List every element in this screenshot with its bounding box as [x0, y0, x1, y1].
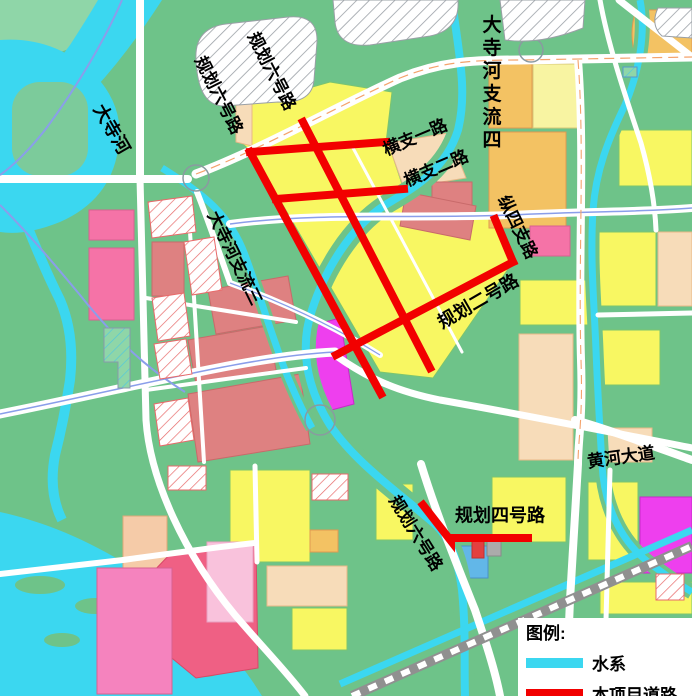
map-canvas: 规划六号路规划六号路大寺河大寺河支流四横支一路横支二路纵四支路规划二号路大寺河支…: [0, 0, 692, 696]
legend-title: 图例:: [526, 624, 692, 644]
legend: 图例: 水系 本项目道路: [518, 618, 692, 696]
legend-row-water: 水系: [526, 650, 692, 675]
project-road-line-swatch: [526, 689, 583, 696]
planning-map: 规划六号路规划六号路大寺河大寺河支流四横支一路横支二路纵四支路规划二号路大寺河支…: [0, 0, 692, 696]
map-label-10: 规划四号路: [455, 504, 546, 525]
legend-row-project-road: 本项目道路: [526, 681, 692, 696]
water-line-swatch: [526, 658, 583, 668]
legend-project-road-label: 本项目道路: [592, 681, 677, 696]
legend-water-label: 水系: [592, 650, 626, 675]
